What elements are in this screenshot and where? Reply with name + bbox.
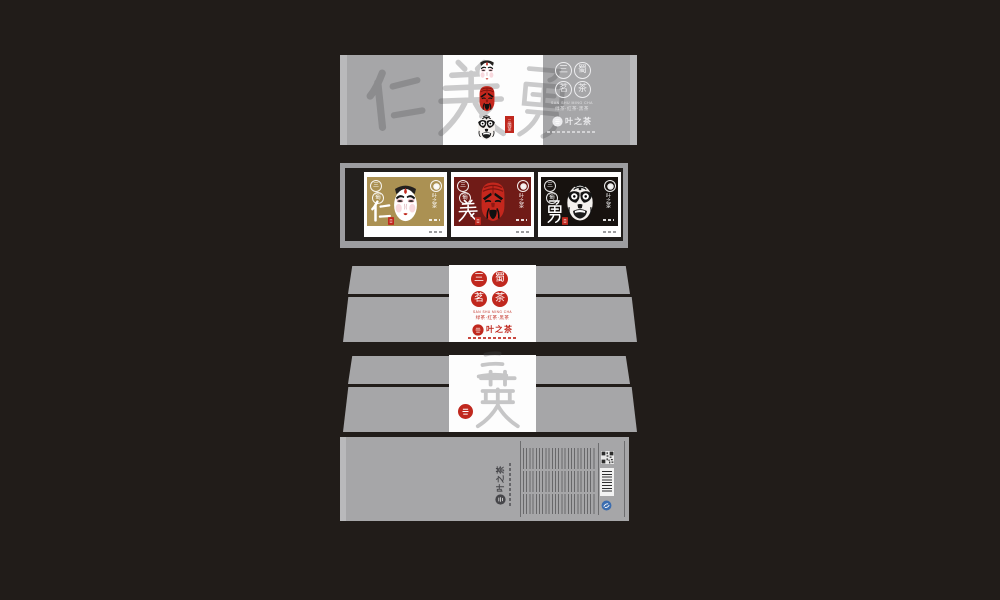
side-tag: 三国茶 [505, 116, 514, 133]
seal-title-1: 三 [555, 62, 572, 79]
tin-card-yi: 三 蜀 叶之茶 [451, 172, 534, 237]
tin-card-ren: 三 蜀 叶之茶 [364, 172, 447, 237]
brand-seal-icon [552, 116, 563, 127]
back-panel: 叶之茶 [340, 437, 629, 521]
corner-seal-1: 三 [370, 180, 382, 192]
sleeve-lid-panel: 三 蜀 茗 茶 SAN SHU MING CHA 绿茶·红茶·黑茶 叶之茶 [340, 265, 640, 342]
info-section-gap [523, 492, 596, 494]
card-footer-text-stripe [603, 231, 617, 233]
white-face-mask-icon [471, 57, 503, 85]
packaging-mockup-scene: 三国茶 三 蜀 茗 茶 SAN SHU MING CHA 绿茶·红茶·黑茶 叶之… [0, 0, 1000, 600]
red-seal-stamp-icon [475, 217, 481, 225]
front-wrap-panel: 三国茶 三 蜀 茗 茶 SAN SHU MING CHA 绿茶·红茶·黑茶 叶之… [340, 55, 637, 145]
seal-title-4: 茶 [492, 291, 508, 307]
seal-title-2: 蜀 [574, 62, 591, 79]
card-caption-stripe [603, 219, 614, 221]
brand-tagline-stripe [547, 131, 597, 133]
series-caption-cn: 绿茶·红茶·黑茶 [449, 315, 536, 321]
brand-name-vertical: 叶之茶 [518, 193, 525, 208]
black-face-mask-icon [471, 112, 502, 142]
barcode [600, 468, 614, 496]
card-face: 三 蜀 叶之茶 [367, 177, 444, 226]
card-footer-text-stripe [516, 231, 530, 233]
seal-title-4: 茶 [574, 81, 591, 98]
tin-card-yong: 三 蜀 叶之茶 [538, 172, 621, 237]
brand-name-vertical: 叶之茶 [605, 193, 612, 208]
red-seal-stamp-icon [388, 217, 394, 225]
red-seal-stamp-icon [562, 217, 568, 225]
tins-tray-panel: 三 蜀 叶之茶 三 蜀 叶之茶 [340, 163, 628, 248]
corner-seal-1: 三 [457, 180, 469, 192]
fold-line [520, 441, 521, 517]
brand-name: 叶之茶 [486, 324, 513, 335]
brand-seal-icon [604, 180, 616, 192]
red-seal-stamp-icon [458, 404, 473, 419]
seal-title-3: 茗 [471, 291, 487, 307]
card-caption-stripe [429, 219, 440, 221]
brand-seal-icon [472, 324, 484, 336]
card-face: 三 蜀 叶之茶 [541, 177, 618, 226]
seal-title-2: 蜀 [492, 271, 508, 287]
panel-edge-highlight [340, 437, 346, 521]
brand-name-vertical: 叶之茶 [431, 193, 438, 208]
brand-tagline-stripe [509, 462, 511, 506]
brand-seal-icon [495, 494, 506, 505]
brand-logo: 叶之茶 [493, 450, 507, 520]
card-caption-stripe [516, 219, 527, 221]
info-section-gap [523, 469, 596, 471]
seal-title-3: 茗 [555, 81, 572, 98]
series-caption-en: SAN SHU MING CHA [449, 310, 536, 314]
barcode-stripes [602, 471, 612, 493]
series-caption-en: SAN SHU MING CHA [537, 101, 607, 105]
qr-code-icon [601, 451, 614, 464]
fold-line [598, 443, 599, 515]
corner-seal-1: 三 [544, 180, 556, 192]
inner-lid-panel [340, 355, 640, 432]
qs-certification-icon [601, 500, 612, 511]
seal-title-1: 三 [471, 271, 487, 287]
fold-line [624, 441, 625, 517]
red-face-mask-icon [472, 84, 502, 113]
watermark-ying-glyph [453, 367, 541, 431]
series-caption-cn: 绿茶·红茶·黑茶 [537, 106, 607, 112]
card-footer-text-stripe [429, 231, 443, 233]
brand-name: 叶之茶 [495, 465, 506, 492]
card-face: 三 蜀 叶之茶 [454, 177, 531, 226]
brand-logo: 叶之茶 [449, 323, 536, 336]
brand-tagline-stripe [468, 337, 516, 339]
rotated-brand-logo: 叶之茶 [493, 450, 517, 520]
product-info-text-block [523, 448, 596, 514]
brand-logo: 叶之茶 [537, 115, 607, 128]
brand-seal-icon [517, 180, 529, 192]
calligraphy-watermark [445, 355, 575, 432]
brand-seal-icon [430, 180, 442, 192]
brand-name: 叶之茶 [565, 116, 592, 127]
